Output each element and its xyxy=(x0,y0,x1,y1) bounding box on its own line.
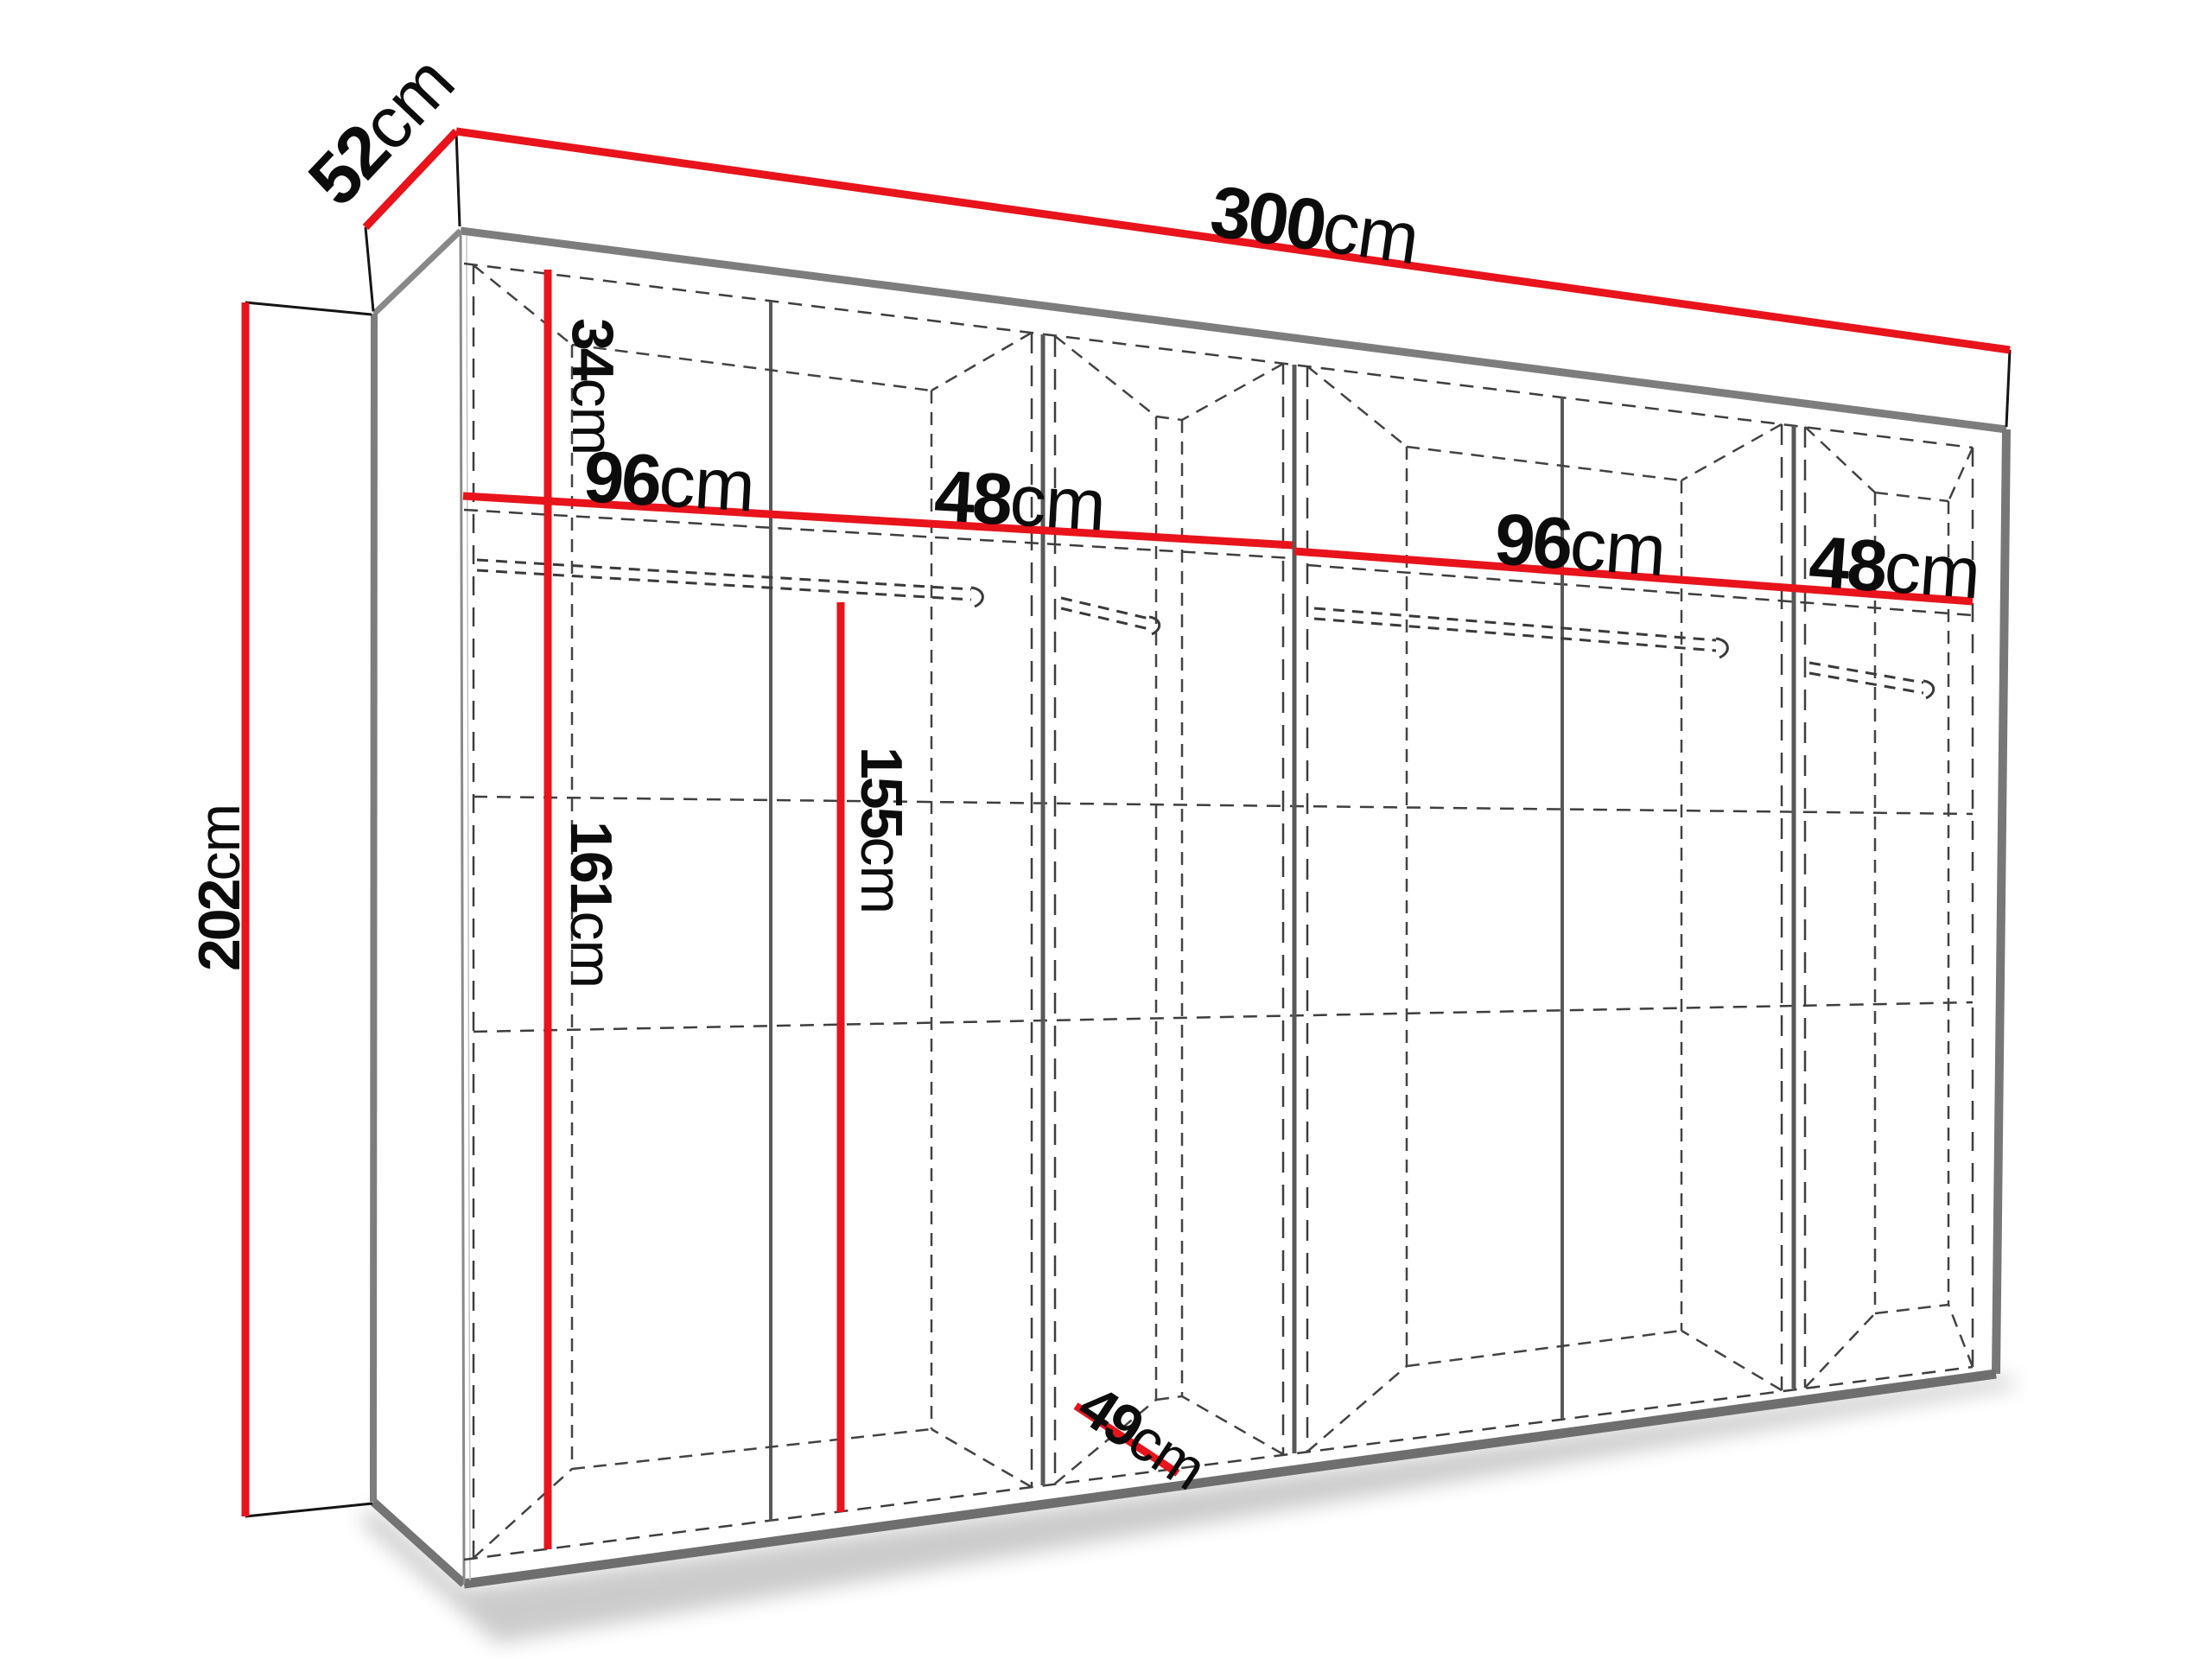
label-height-202: 202cm xyxy=(187,804,252,971)
label-hanging-155: 155cm xyxy=(849,747,914,913)
label-bay2-48: 48cm xyxy=(932,454,1108,546)
side-back-edge xyxy=(373,314,374,1502)
label-hanging-161: 161cm xyxy=(558,821,624,988)
label-bay1-96: 96cm xyxy=(582,435,757,527)
label-depth-52: 52cm xyxy=(293,41,469,220)
label-bay3-96: 96cm xyxy=(1492,498,1669,591)
ext-width-left xyxy=(456,131,460,226)
label-bay4-48: 48cm xyxy=(1807,520,1983,613)
label-width-300: 300cm xyxy=(1205,170,1423,280)
ext-height-top xyxy=(245,302,372,315)
wardrobe-dimension-diagram: 300cm 52cm 202cm 34cm 96cm 48cm 96cm 48c… xyxy=(0,0,2212,1659)
ext-width-right xyxy=(2006,350,2010,427)
ext-depth-lower xyxy=(365,227,373,311)
label-upper-shelf-34: 34cm xyxy=(560,318,626,454)
ext-height-bottom xyxy=(245,1503,372,1516)
